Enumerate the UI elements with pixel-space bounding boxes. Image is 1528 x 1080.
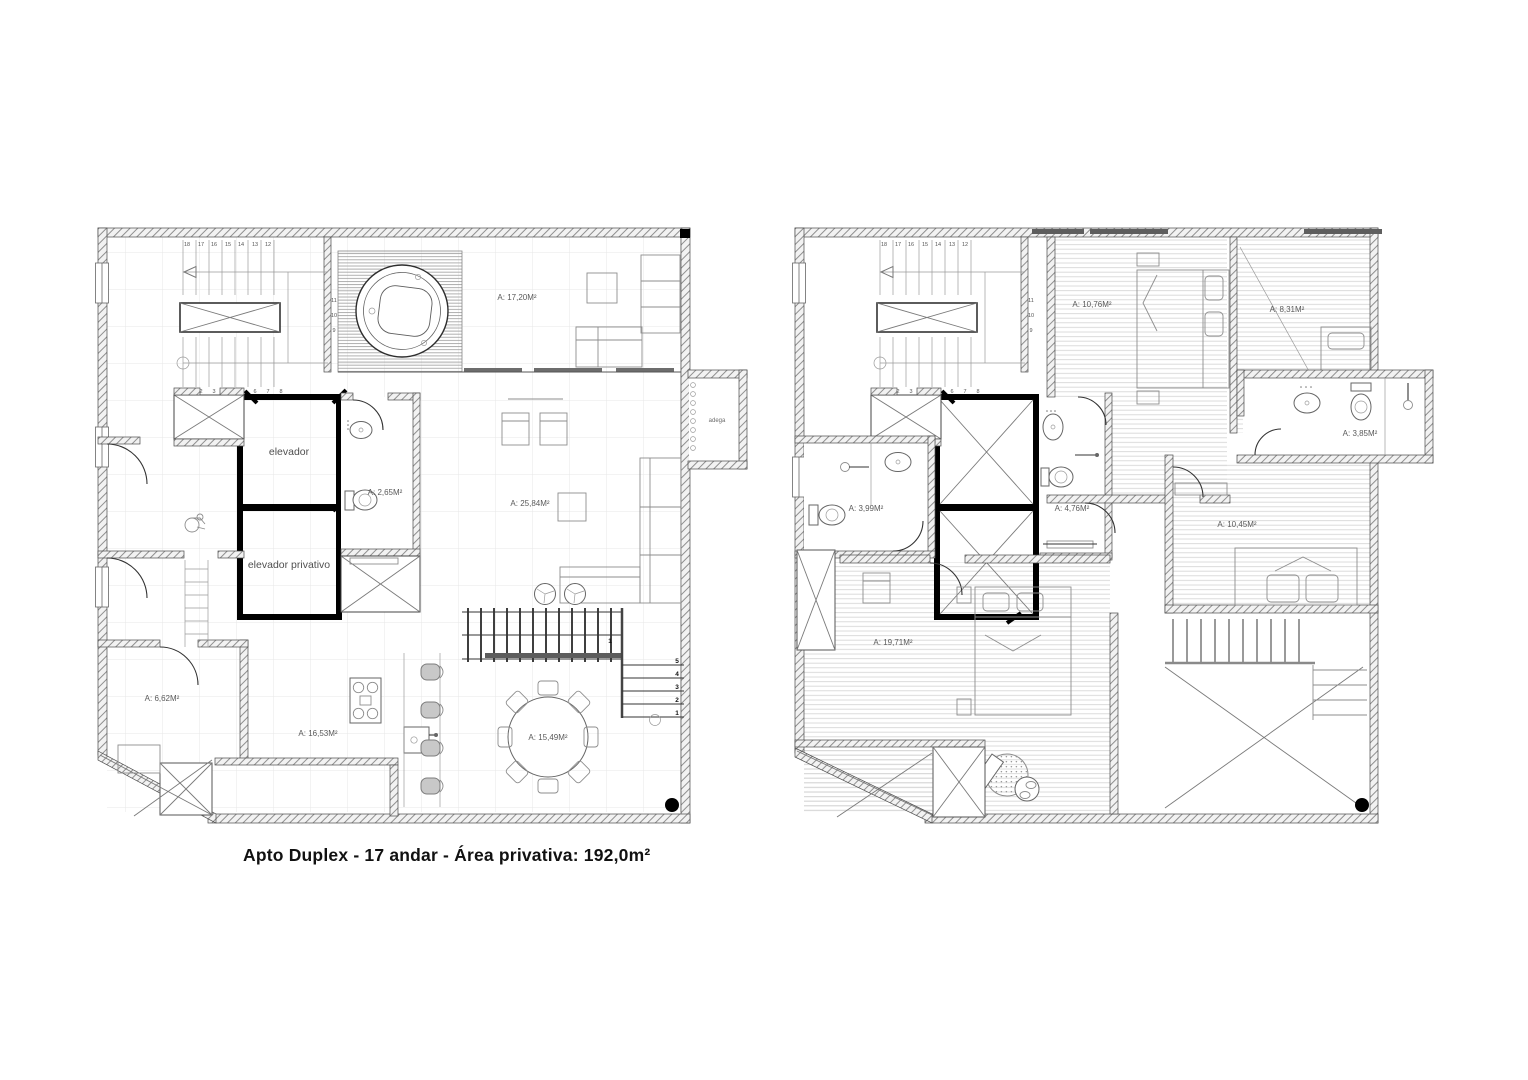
bathroom-2: A: 3,99M² — [795, 436, 935, 558]
bath2-area-label: A: 3,99M² — [849, 504, 884, 513]
svg-text:3: 3 — [909, 389, 912, 395]
svg-text:14: 14 — [238, 242, 244, 248]
svg-text:5: 5 — [675, 658, 679, 665]
svg-text:10: 10 — [331, 313, 337, 319]
void-over-living — [1163, 619, 1367, 811]
living-area-label: A: 25,84M² — [510, 499, 549, 508]
bedroom1-area-label: A: 10,76M² — [1072, 300, 1111, 309]
svg-text:4: 4 — [675, 671, 679, 678]
bathroom-3: A: 4,76M² — [1040, 393, 1112, 560]
bathroom-1: A: 3,85M² — [1237, 370, 1433, 463]
lavabo: A: 2,65M² — [341, 393, 420, 612]
toilet — [809, 505, 845, 525]
svg-text:15: 15 — [225, 242, 231, 248]
wine-cellar: adega — [688, 370, 747, 469]
elevator-label: elevador — [269, 446, 310, 458]
svg-text:3: 3 — [212, 389, 215, 395]
dining-area-label: A: 15,49M² — [528, 733, 567, 742]
svg-text:18: 18 — [881, 242, 887, 248]
plan-caption: Apto Duplex - 17 andar - Área privativa:… — [243, 845, 650, 866]
floor-plan-upper: 18 17 16 15 14 13 12 11 10 9 1 2 3 4 5 6… — [785, 215, 1440, 835]
svg-text:2: 2 — [675, 697, 679, 704]
hall-area-label: A: 6,62M² — [145, 694, 180, 703]
svg-text:14: 14 — [935, 242, 941, 248]
svg-text:17: 17 — [198, 242, 204, 248]
svg-text:12: 12 — [962, 242, 968, 248]
stove — [350, 678, 381, 723]
duct-shaft — [174, 388, 244, 446]
svg-text:16: 16 — [908, 242, 914, 248]
svg-text:10: 10 — [1028, 313, 1034, 319]
column-dot — [665, 798, 679, 812]
svg-text:16: 16 — [211, 242, 217, 248]
stairwell: 18 17 16 15 14 13 12 11 10 9 1 2 3 4 5 6… — [874, 237, 1034, 395]
floor-plan-lower: 18 17 16 15 14 13 12 11 10 9 1 2 3 4 5 6… — [88, 215, 758, 835]
bath3-area-label: A: 4,76M² — [1055, 504, 1090, 513]
svg-text:18: 18 — [184, 242, 190, 248]
jacuzzi — [356, 265, 448, 357]
svg-text:9: 9 — [332, 328, 335, 334]
stair-void — [180, 303, 280, 332]
svg-text:17: 17 — [895, 242, 901, 248]
svg-text:13: 13 — [949, 242, 955, 248]
svg-text:1: 1 — [675, 710, 679, 717]
master-area-label: A: 19,71M² — [873, 638, 912, 647]
svg-text:11: 11 — [1028, 298, 1034, 304]
column-dot — [1355, 798, 1369, 812]
bedroom2-area-label: A: 8,31M² — [1270, 305, 1305, 314]
bedroom3-area-label: A: 10,45M² — [1217, 520, 1256, 529]
floor-plan-sheet: 18 17 16 15 14 13 12 11 10 9 1 2 3 4 5 6… — [0, 0, 1528, 1080]
svg-text:1: 1 — [608, 638, 612, 645]
svg-text:3: 3 — [675, 684, 679, 691]
lavabo-area-label: A: 2,65M² — [368, 488, 403, 497]
svg-text:15: 15 — [922, 242, 928, 248]
svg-text:12: 12 — [265, 242, 271, 248]
svg-text:13: 13 — [252, 242, 258, 248]
svg-text:9: 9 — [1029, 328, 1032, 334]
terrace-area-label: A: 17,20M² — [497, 293, 536, 302]
corner-marker — [680, 229, 690, 238]
toilet — [1351, 383, 1371, 420]
bath1-area-label: A: 3,85M² — [1343, 429, 1378, 438]
duct-below — [341, 556, 420, 612]
private-elevator-label: elevador privativo — [248, 559, 330, 571]
svg-text:11: 11 — [331, 298, 337, 304]
landing-edge — [485, 653, 623, 658]
adega-label: adega — [709, 418, 726, 424]
stair-void — [877, 303, 977, 332]
kitchen-area-label: A: 16,53M² — [298, 729, 337, 738]
toilet — [1041, 467, 1073, 487]
sink — [885, 453, 911, 472]
